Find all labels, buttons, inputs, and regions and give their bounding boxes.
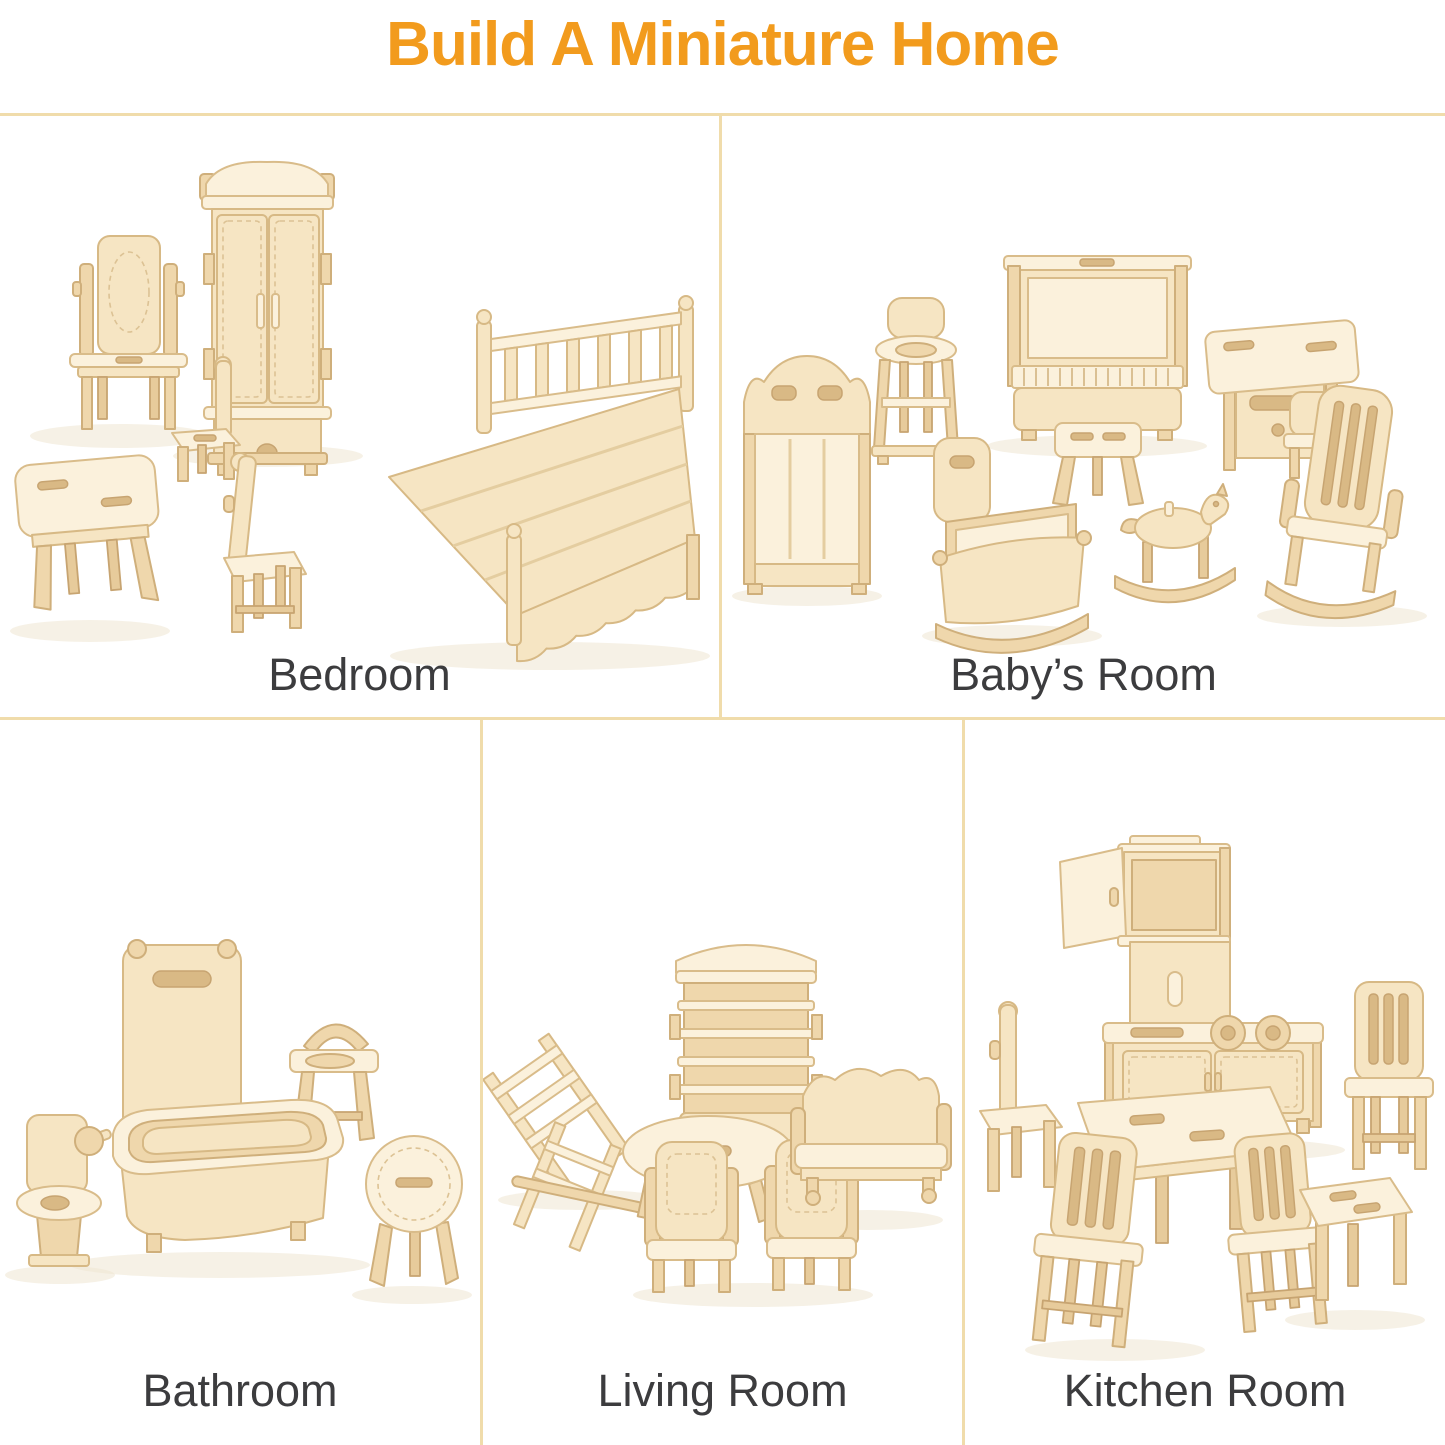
living-room-label: Living Room [483,1365,962,1417]
bedroom-label: Bedroom [0,649,719,701]
wall-cabinet-illustration [1060,836,1230,948]
kitchen-label: Kitchen Room [965,1365,1445,1417]
babys-room-photo [722,116,1445,717]
armchair-left-illustration [645,1142,738,1292]
product-collage: Build A Miniature Home [0,0,1445,1445]
living-room-photo [483,720,962,1445]
section-bathroom: Bathroom [0,720,480,1445]
chair-back-left-illustration [980,1002,1062,1191]
back-panel-illustration [1130,942,1230,1026]
bathroom-label: Bathroom [0,1365,480,1417]
page-title: Build A Miniature Home [0,12,1445,77]
dressing-table-illustration [70,236,187,429]
piano-stool-illustration [1053,423,1143,505]
section-bedroom: Bedroom [0,116,719,717]
section-babys-room: Baby’s Room [722,116,1445,717]
bedroom-photo [0,116,719,717]
dining-chair-illustration [224,453,306,632]
bathtub-illustration [113,1100,343,1252]
section-kitchen: Kitchen Room [965,720,1445,1445]
chair-right-illustration [1345,982,1433,1169]
round-side-table-illustration [366,1136,462,1286]
double-bed-illustration [389,296,699,661]
piano-illustration [1004,256,1191,440]
bathroom-photo [0,720,480,1445]
babys-room-label: Baby’s Room [722,649,1445,701]
kitchen-photo [965,720,1445,1445]
stool-illustration [1300,1178,1412,1300]
toilet-illustration [17,1115,112,1266]
section-living-room: Living Room [483,720,962,1445]
sofa-bench-illustration [791,1069,951,1205]
side-table-illustration [14,454,166,612]
crib-bed-illustration [744,356,870,594]
